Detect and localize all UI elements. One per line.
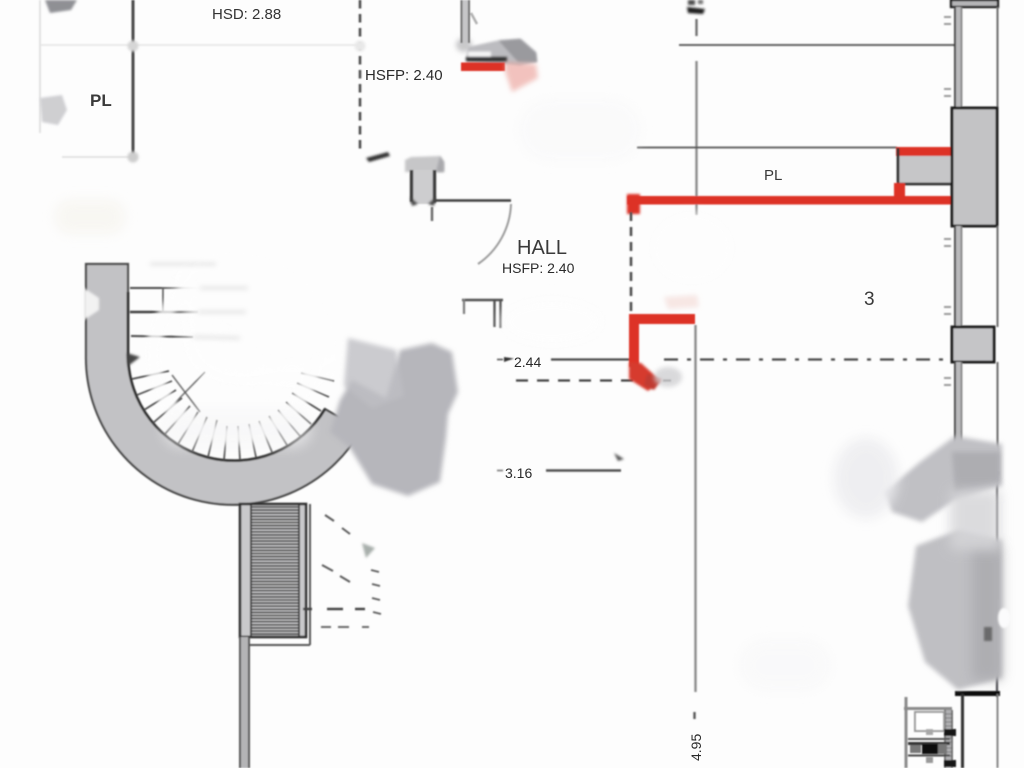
svg-text:PL: PL xyxy=(764,167,782,184)
svg-text:3.16: 3.16 xyxy=(505,465,532,481)
svg-text:HALL: HALL xyxy=(517,237,567,259)
svg-text:3: 3 xyxy=(864,289,875,310)
svg-text:2.44: 2.44 xyxy=(514,354,541,370)
svg-text:HSD: 2.88: HSD: 2.88 xyxy=(212,6,281,23)
svg-text:HSFP: 2.40: HSFP: 2.40 xyxy=(502,260,575,276)
svg-text:4.95: 4.95 xyxy=(688,734,704,761)
svg-text:HSFP: 2.40: HSFP: 2.40 xyxy=(365,67,443,84)
svg-text:PL: PL xyxy=(90,91,112,110)
